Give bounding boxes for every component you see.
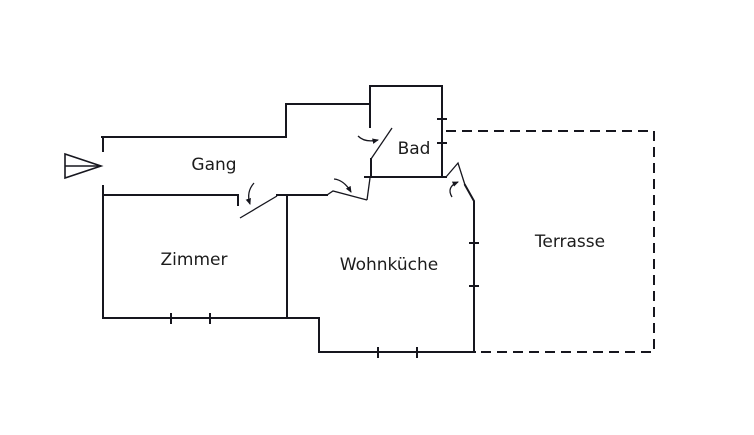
room-label-bad: Bad [398,139,431,159]
room-label-gang: Gang [191,155,236,175]
floor-plan-canvas: Gang Bad Zimmer Wohnküche Terrasse [0,0,754,435]
room-label-wohnkueche: Wohnküche [340,255,438,275]
wohnkueche-door [327,178,370,200]
room-label-terrasse: Terrasse [534,232,605,252]
room-label-zimmer: Zimmer [161,250,228,270]
terrasse-door [446,163,465,197]
entrance-arrow-icon [65,154,101,178]
floor-plan-drawing: Gang Bad Zimmer Wohnküche Terrasse [0,0,754,435]
gang-walls [102,104,370,151]
zimmer-door [238,183,277,218]
bad-door [358,128,392,159]
bad-walls [365,86,446,177]
